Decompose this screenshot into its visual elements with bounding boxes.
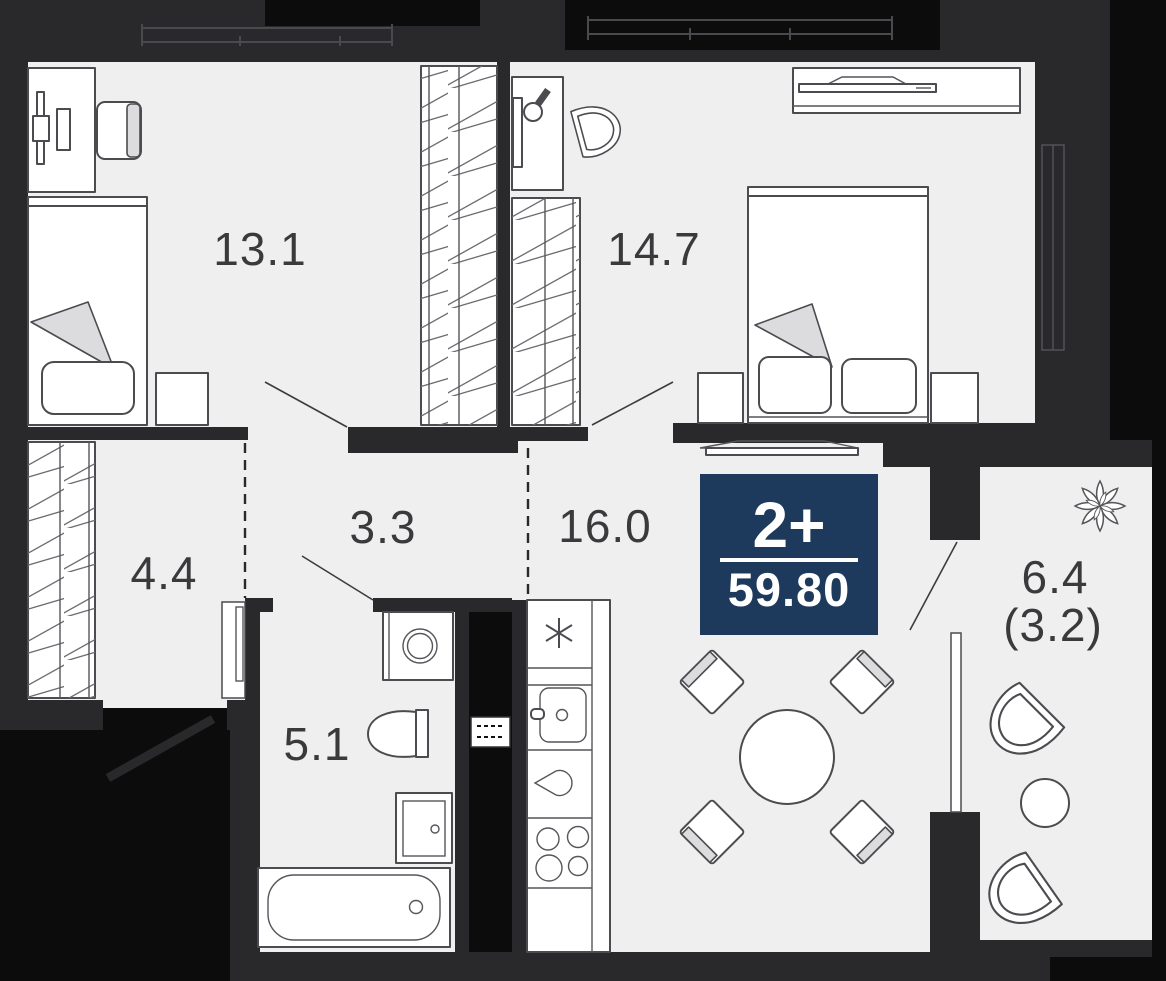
badge-total-area: 59.80: [728, 563, 851, 616]
room-label-hallway: 3.3: [350, 501, 417, 553]
wardrobe-icon: [28, 442, 95, 698]
floorplan: 13.1 14.7 3.3 16.0 4.4 5.1 6.4 (3.2) 2+ …: [0, 0, 1166, 981]
kitchen-units: [527, 600, 610, 952]
wardrobe-icon: [421, 66, 497, 425]
room-label-kitchen-living: 16.0: [558, 500, 652, 552]
toilet-icon: [368, 710, 428, 757]
room-label-dressing: 4.4: [131, 547, 198, 599]
badge-rooms-label: 2+: [753, 489, 826, 561]
nightstand-icon: [698, 373, 743, 423]
double-bed-icon: [748, 187, 928, 423]
plant-icon: [1075, 481, 1125, 531]
wardrobe-icon: [512, 198, 580, 425]
washing-machine-icon: [383, 612, 453, 680]
room-label-bedroom1: 13.1: [213, 223, 307, 275]
dining-table-icon: [740, 710, 834, 804]
room-label-bathroom: 5.1: [284, 718, 351, 770]
bathtub-icon: [258, 868, 450, 947]
room-label-bedroom2: 14.7: [607, 223, 701, 275]
room-label-balcony: 6.4: [1022, 551, 1089, 603]
single-bed-icon: [28, 197, 147, 425]
nightstand-icon: [931, 373, 978, 423]
office-chair-icon: [97, 102, 141, 159]
sink-cabinet-icon: [396, 793, 452, 863]
desk-icon: [28, 68, 95, 192]
dresser-icon: [793, 68, 1020, 113]
nightstand-icon: [156, 373, 208, 425]
floorplan-svg: 13.1 14.7 3.3 16.0 4.4 5.1 6.4 (3.2) 2+ …: [0, 0, 1166, 981]
balcony-glazing: [951, 633, 961, 812]
vent-shaft: [469, 612, 512, 952]
apartment-badge: 2+ 59.80: [700, 474, 878, 635]
room-label-balcony-secondary: (3.2): [1003, 599, 1103, 651]
sliding-door-niche: [222, 602, 245, 698]
desk-icon: [512, 77, 563, 190]
round-table-icon: [1021, 779, 1069, 827]
